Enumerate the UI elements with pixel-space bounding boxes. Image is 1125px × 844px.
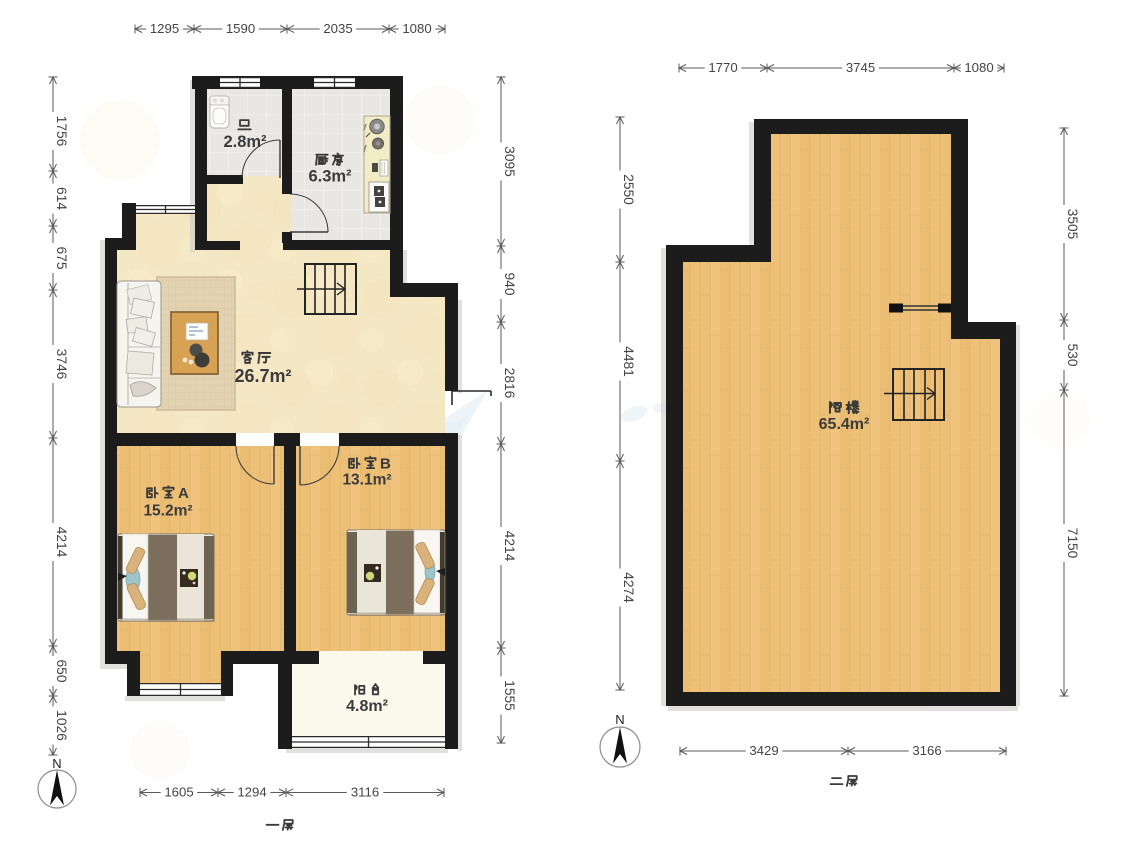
svg-text:530: 530 xyxy=(1065,343,1080,366)
svg-text:614: 614 xyxy=(54,187,69,210)
svg-text:2550: 2550 xyxy=(621,174,636,205)
svg-text:6.3m²: 6.3m² xyxy=(308,168,352,186)
svg-text:3746: 3746 xyxy=(54,349,69,380)
svg-text:1026: 1026 xyxy=(54,710,69,741)
svg-text:2035: 2035 xyxy=(323,21,352,36)
svg-text:675: 675 xyxy=(54,246,69,269)
svg-text:4274: 4274 xyxy=(621,572,636,603)
svg-text:A: A xyxy=(178,485,189,502)
svg-text:N: N xyxy=(615,712,624,727)
svg-text:2816: 2816 xyxy=(502,368,517,399)
svg-text:3505: 3505 xyxy=(1065,209,1080,240)
svg-text:3429: 3429 xyxy=(749,743,778,758)
svg-text:650: 650 xyxy=(54,659,69,682)
svg-text:1770: 1770 xyxy=(708,60,737,75)
svg-text:1080: 1080 xyxy=(402,21,431,36)
svg-text:3116: 3116 xyxy=(351,785,379,800)
svg-text:3166: 3166 xyxy=(912,743,941,758)
svg-text:4214: 4214 xyxy=(502,531,517,562)
svg-text:1590: 1590 xyxy=(226,21,255,36)
svg-text:1756: 1756 xyxy=(54,116,69,147)
svg-text:N: N xyxy=(52,756,61,771)
svg-text:4214: 4214 xyxy=(54,527,69,558)
svg-text:3095: 3095 xyxy=(502,146,517,177)
svg-text:1080: 1080 xyxy=(964,60,993,75)
svg-text:26.7m²: 26.7m² xyxy=(234,366,291,386)
svg-text:13.1m²: 13.1m² xyxy=(342,472,391,489)
svg-text:1294: 1294 xyxy=(237,785,266,800)
svg-text:1605: 1605 xyxy=(164,785,193,800)
svg-text:B: B xyxy=(380,456,391,473)
svg-text:15.2m²: 15.2m² xyxy=(143,503,192,520)
svg-text:4481: 4481 xyxy=(621,346,636,377)
svg-text:3745: 3745 xyxy=(846,60,875,75)
svg-text:65.4m²: 65.4m² xyxy=(819,416,870,433)
svg-text:1555: 1555 xyxy=(502,680,517,711)
svg-text:4.8m²: 4.8m² xyxy=(346,698,388,715)
svg-text:940: 940 xyxy=(502,272,517,295)
svg-text:1295: 1295 xyxy=(150,21,179,36)
svg-text:2.8m²: 2.8m² xyxy=(223,133,267,151)
svg-text:7150: 7150 xyxy=(1065,528,1080,559)
